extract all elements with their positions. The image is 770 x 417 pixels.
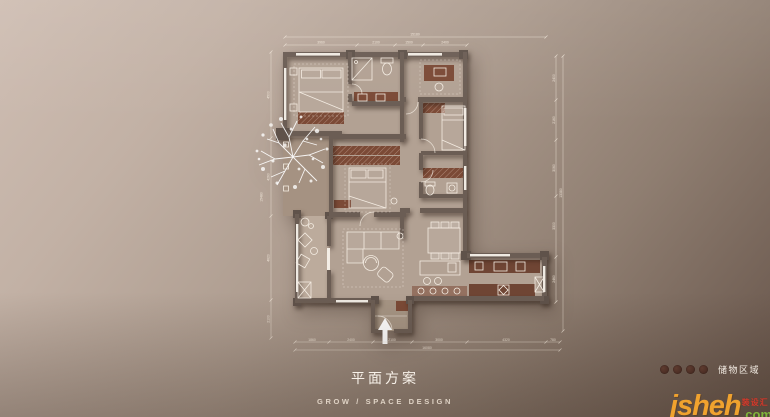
dim-top-seg: 2400 [441, 41, 449, 45]
dim-top-seg: 3960 [317, 41, 325, 45]
dim-top-overall: 15180 [410, 32, 420, 36]
storage-legend: 储物区域 [660, 362, 760, 376]
legend-dot-icon [686, 365, 695, 374]
dim-bottom-seg: 3000 [435, 338, 443, 342]
dim-left-seg: 4620 [267, 254, 271, 262]
balcony-floor [297, 216, 329, 300]
legend-dot-icon [660, 365, 669, 374]
legend-label: 储物区域 [718, 363, 760, 376]
watermark-badge: 装设汇 [742, 399, 769, 407]
floor-plan-svg: 15180 3960 2100 1500 2400 1860 2400 2100… [0, 0, 770, 417]
dim-left-seg: 4500 [267, 91, 271, 99]
dim-right-seg: 3060 [552, 164, 556, 172]
floor-plan [256, 50, 549, 344]
dim-bottom-overall: 16080 [422, 346, 432, 350]
dim-right-seg: 2160 [552, 116, 556, 124]
dim-bottom-seg: 4320 [502, 338, 510, 342]
dim-left-overall: 15480 [260, 192, 264, 202]
dim-bottom-seg: 1860 [308, 338, 316, 342]
dim-bottom-seg: 2100 [388, 338, 396, 342]
presentation-slide: 15180 3960 2100 1500 2400 1860 2400 2100… [0, 0, 770, 417]
watermark-logo: jsheh 装设汇 .com [670, 392, 770, 417]
page-title: 平面方案 [300, 368, 470, 388]
dim-top-seg: 1500 [405, 41, 413, 45]
legend-dot-icon [699, 365, 708, 374]
dim-bottom-seg: 2400 [347, 338, 355, 342]
legend-dot-icon [673, 365, 682, 374]
watermark-name: jsheh [670, 392, 741, 417]
dim-right-overall: 13380 [559, 188, 563, 198]
dim-right-seg: 2400 [552, 74, 556, 82]
page-subtitle: GROW / SPACE DESIGN [300, 397, 470, 406]
dim-left-seg: 2100 [267, 315, 271, 323]
watermark-stack: 装设汇 .com [742, 399, 770, 417]
title-block: 平面方案 GROW / SPACE DESIGN [300, 368, 470, 406]
watermark-tld: .com [742, 408, 770, 417]
dim-right-seg: 3300 [552, 222, 556, 230]
dim-top-seg: 2100 [372, 41, 380, 45]
dim-right-seg: 2460 [552, 275, 556, 283]
dim-bottom-seg: 780 [550, 338, 556, 342]
dim-left-seg: 4260 [267, 173, 271, 181]
